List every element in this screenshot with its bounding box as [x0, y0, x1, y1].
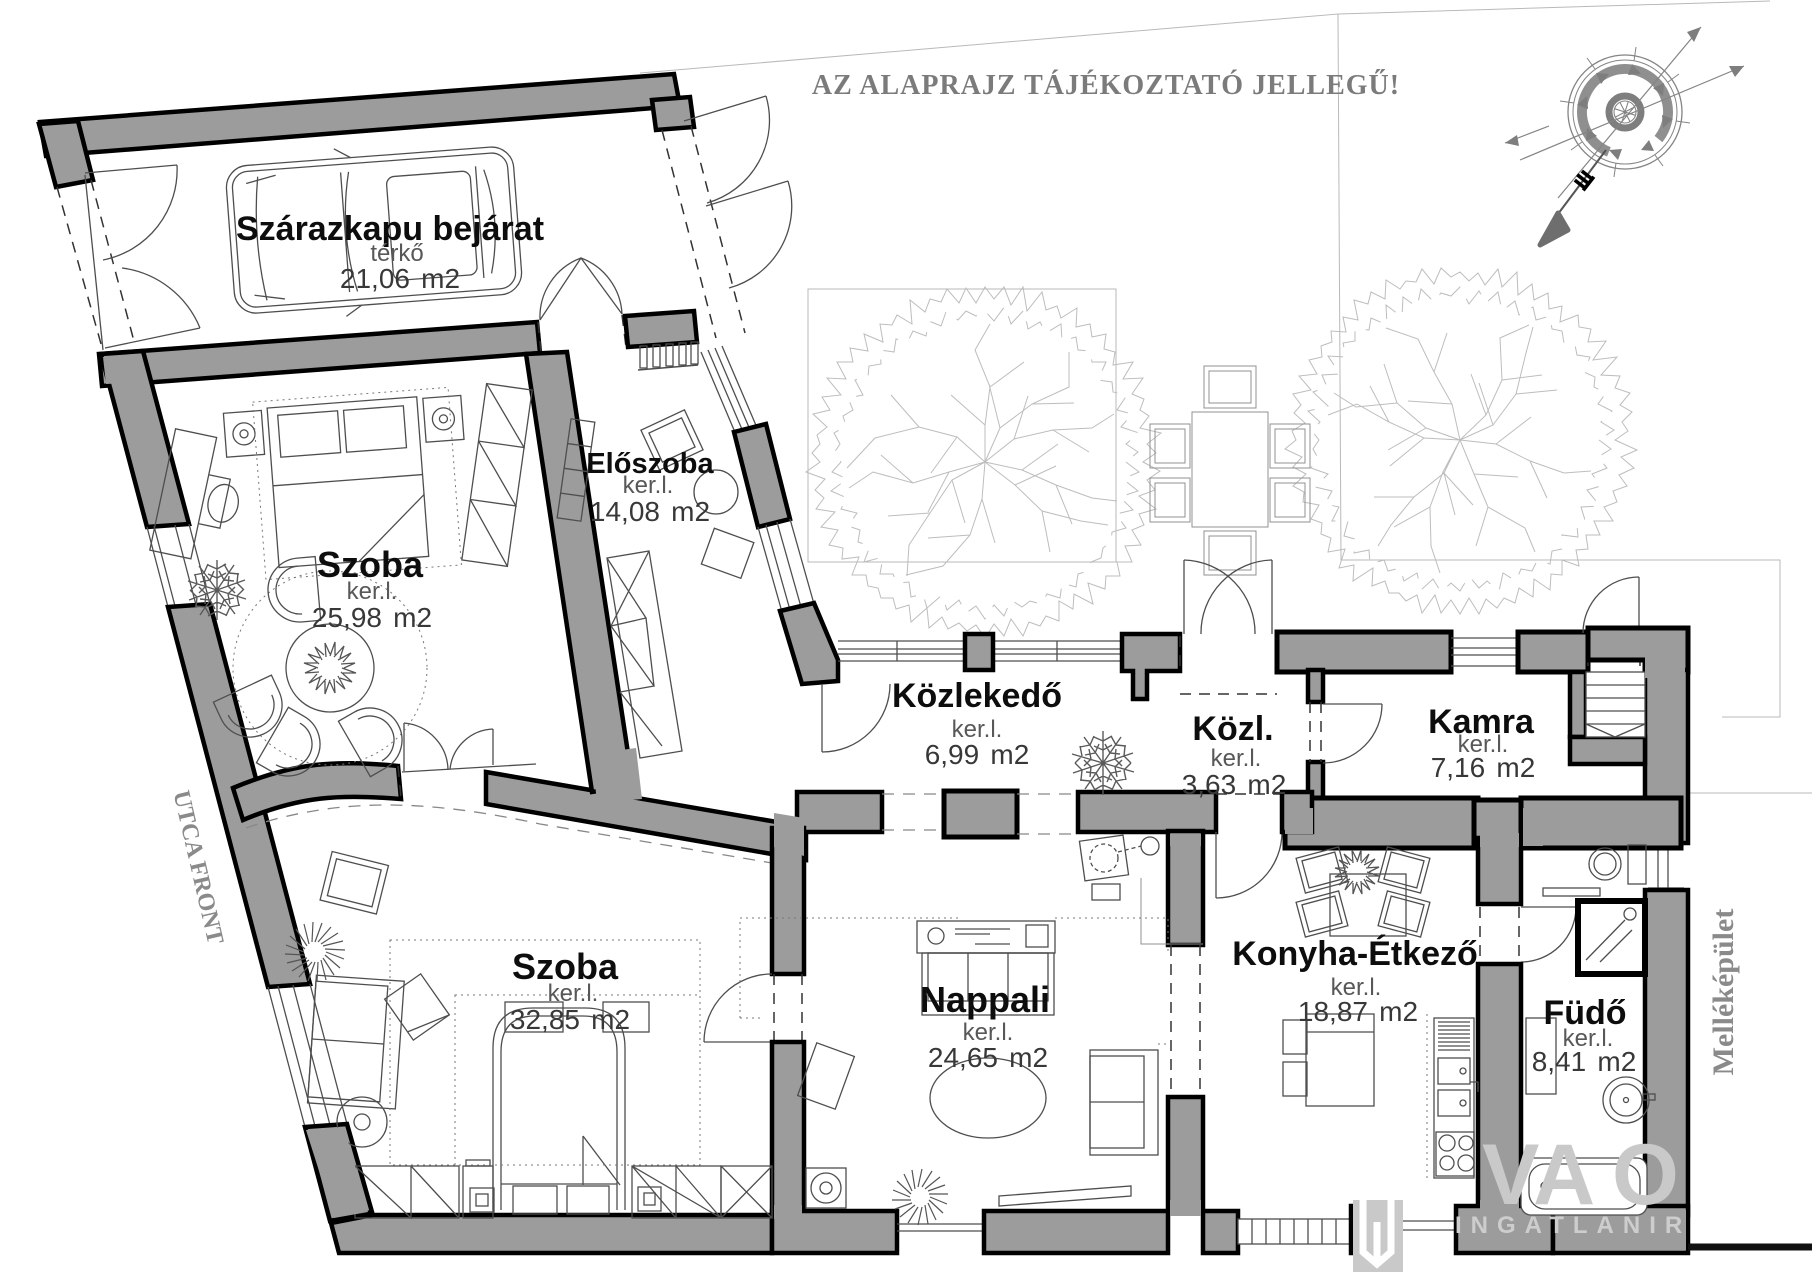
svg-text:6,99 m2: 6,99 m2 — [925, 739, 1030, 770]
svg-text:Konyha-Étkező: Konyha-Étkező — [1232, 935, 1478, 973]
svg-text:3,63 m2: 3,63 m2 — [1182, 769, 1287, 800]
svg-text:O: O — [1612, 1127, 1679, 1223]
svg-text:14,08 m2: 14,08 m2 — [590, 496, 710, 527]
svg-text:7,16 m2: 7,16 m2 — [1431, 752, 1536, 783]
svg-text:Nappali: Nappali — [920, 979, 1050, 1020]
svg-text:Közl.: Közl. — [1192, 710, 1273, 748]
svg-text:ker.l.: ker.l. — [548, 980, 599, 1007]
svg-text:21,06 m2: 21,06 m2 — [340, 263, 460, 294]
svg-text:ker.l.: ker.l. — [623, 472, 674, 499]
svg-text:ker.l.: ker.l. — [347, 578, 398, 605]
svg-text:18,87 m2: 18,87 m2 — [1298, 996, 1418, 1027]
svg-text:8,41 m2: 8,41 m2 — [1532, 1046, 1637, 1077]
svg-text:INGATLANIR: INGATLANIR — [1455, 1212, 1691, 1239]
svg-text:AZ ALAPRAJZ TÁJÉKOZTATÓ JELLEG: AZ ALAPRAJZ TÁJÉKOZTATÓ JELLEGŰ! — [812, 69, 1400, 101]
svg-text:Melléképület: Melléképület — [1707, 909, 1740, 1076]
svg-text:24,65 m2: 24,65 m2 — [928, 1042, 1048, 1073]
svg-text:25,98 m2: 25,98 m2 — [312, 602, 432, 633]
svg-text:VA: VA — [1482, 1127, 1595, 1223]
svg-text:Közlekedő: Közlekedő — [892, 677, 1062, 715]
svg-text:32,85 m2: 32,85 m2 — [510, 1004, 630, 1035]
svg-text:ker.l.: ker.l. — [1211, 745, 1262, 772]
